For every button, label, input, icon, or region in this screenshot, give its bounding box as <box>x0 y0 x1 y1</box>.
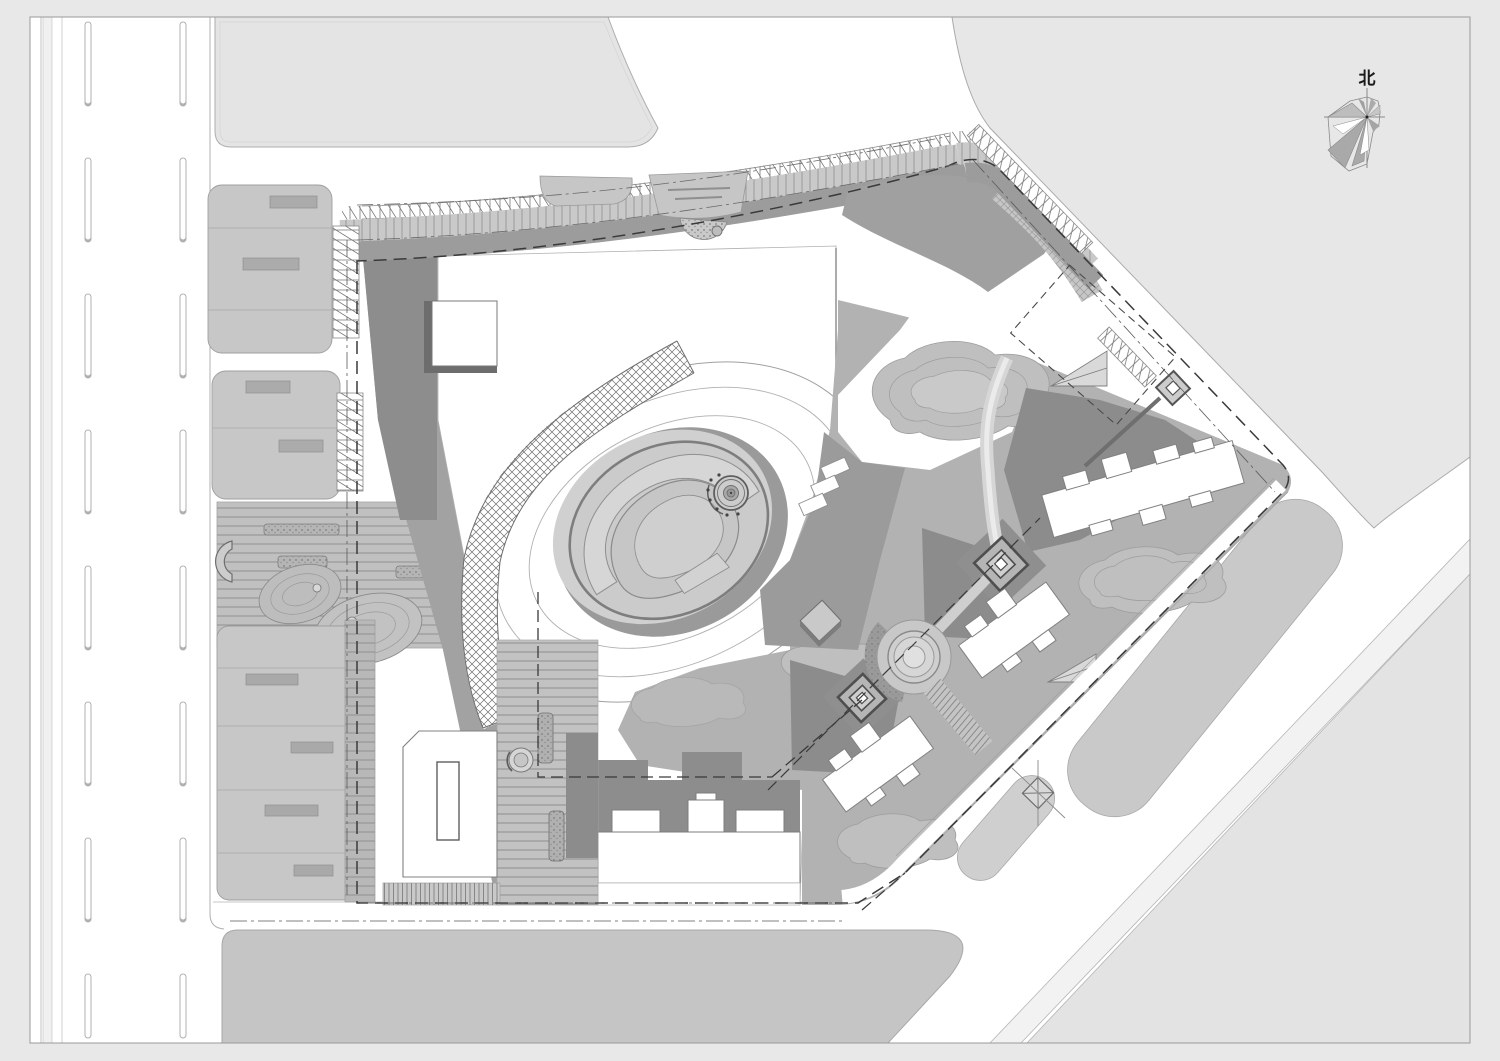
svg-text:北: 北 <box>1359 69 1376 88</box>
